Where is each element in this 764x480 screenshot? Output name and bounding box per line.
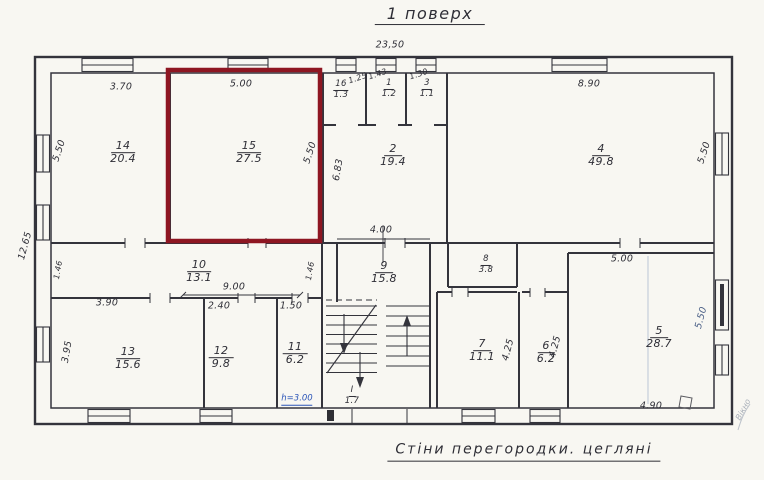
room-number: 7 xyxy=(473,338,490,351)
room-number: 13 xyxy=(116,346,141,359)
room-label-8: 8 3.8 xyxy=(479,255,493,275)
dim-room13-width: 3.90 xyxy=(96,299,118,310)
room-label-10: 10 13.1 xyxy=(186,259,212,285)
floor-plan-page: 1 поверх 23,50 Стіни перегородки. цеглян… xyxy=(0,0,764,480)
dim-room11-width: 1.50 xyxy=(280,302,302,313)
room-number: 3 xyxy=(422,79,432,90)
room-area: 20.4 xyxy=(110,154,136,166)
room-area: 13.1 xyxy=(186,273,212,285)
room-label-stairs: I 1.7 xyxy=(345,386,359,406)
room-label-11: 11 6.2 xyxy=(283,341,308,367)
room-area: 9.8 xyxy=(212,359,230,371)
page-title: 1 поверх xyxy=(375,5,485,25)
interior-walls xyxy=(51,73,714,408)
room-area: 6.2 xyxy=(286,355,304,367)
stairs xyxy=(326,300,429,388)
room-number: 1 xyxy=(384,79,394,90)
room-number: I xyxy=(349,386,356,397)
room-area: 15.8 xyxy=(371,274,397,286)
room-number: 16 xyxy=(333,80,348,91)
ceiling-height-note: h=3.00 xyxy=(281,395,312,406)
room-label-9: 9 15.8 xyxy=(371,260,397,286)
room-area: 1.2 xyxy=(382,90,396,100)
dim-room12-width: 2.40 xyxy=(208,302,230,313)
room-number: 10 xyxy=(187,259,212,272)
room-area: 1.3 xyxy=(334,91,348,101)
room-area: 3.8 xyxy=(479,266,493,276)
room-label-15[interactable]: 15 27.5 xyxy=(236,140,262,166)
room-number: 12 xyxy=(209,345,234,358)
room-number: 8 xyxy=(481,255,491,266)
room-label-12: 12 9.8 xyxy=(209,345,234,371)
room-label-1: 1 1.2 xyxy=(382,79,396,99)
room-number: 14 xyxy=(111,140,136,153)
room-number: 15 xyxy=(237,140,262,153)
room-label-14: 14 20.4 xyxy=(110,140,136,166)
room-area: 11.1 xyxy=(469,352,495,364)
room-label-4: 4 49.8 xyxy=(588,143,614,169)
room-area: 19.4 xyxy=(380,157,406,169)
room-label-2: 2 19.4 xyxy=(380,143,406,169)
room-area: 15.6 xyxy=(115,360,141,372)
room-number: 5 xyxy=(650,325,667,338)
room-number: 9 xyxy=(375,260,392,273)
dim-room14-width: 3.70 xyxy=(110,83,132,94)
dim-room9-width: 4.00 xyxy=(370,226,392,237)
room-area: 28.7 xyxy=(646,339,672,351)
dim-corridor-length: 9.00 xyxy=(223,283,245,294)
room-area: 1.7 xyxy=(345,397,359,407)
room-area: 49.8 xyxy=(588,157,614,169)
dim-room15-width: 5.00 xyxy=(230,80,252,91)
room-label-13: 13 15.6 xyxy=(115,346,141,372)
room-label-3: 3 1.1 xyxy=(420,79,434,99)
room-number: 4 xyxy=(592,143,609,156)
dim-overall-width: 23,50 xyxy=(376,41,405,52)
room-number: 2 xyxy=(384,143,401,156)
room-label-7: 7 11.1 xyxy=(469,338,495,364)
dim-room5-width: 5.00 xyxy=(611,255,633,266)
room-number: 11 xyxy=(283,341,308,354)
room-area: 1.1 xyxy=(420,90,434,100)
room-area: 27.5 xyxy=(236,154,262,166)
room-label-5: 5 28.7 xyxy=(646,325,672,351)
dim-room4-width: 8.90 xyxy=(578,80,600,91)
footer-note: Стіни перегородки. цегляні xyxy=(387,443,660,462)
room-label-16: 16 1.3 xyxy=(333,80,348,100)
dim-room5-bottom: 4.90 xyxy=(640,402,662,413)
